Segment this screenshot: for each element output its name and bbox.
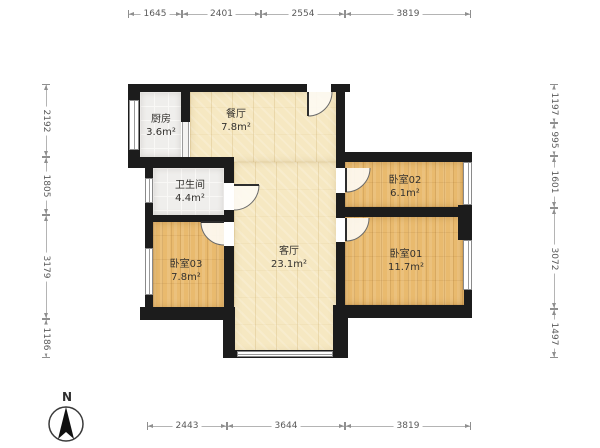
wall (140, 307, 235, 320)
dim-label: 1497 (549, 319, 559, 348)
dim-label: 3644 (272, 421, 301, 431)
dim-top-2554: 2554 (261, 8, 345, 20)
dim-label: 995 (549, 128, 559, 151)
wall (336, 152, 472, 162)
wall (336, 207, 472, 217)
dim-label: 1645 (141, 9, 170, 19)
dim-right-3072: 3072 (548, 208, 560, 309)
wall (224, 160, 234, 183)
wall (224, 246, 234, 307)
room-label-bedroom02: 卧室026.1m² (389, 174, 422, 200)
room-label-bedroom03: 卧室037.8m² (170, 258, 203, 284)
dim-right-1497: 1497 (548, 309, 560, 358)
room-label-bedroom01: 卧室0111.7m² (388, 248, 424, 274)
window (463, 240, 472, 290)
dim-label: 3819 (394, 9, 423, 19)
dim-label: 1805 (41, 172, 51, 201)
dim-top-3819: 3819 (345, 8, 471, 20)
dim-label: 2554 (289, 9, 318, 19)
window (129, 100, 139, 150)
dim-label: 3179 (41, 253, 51, 282)
dim-left-3179: 3179 (40, 215, 52, 319)
dim-bottom-3644: 3644 (227, 420, 345, 432)
dim-label: 2443 (173, 421, 202, 431)
dim-label: 3819 (394, 421, 423, 431)
wall (181, 84, 190, 122)
dim-left-2192: 2192 (40, 84, 52, 157)
window (145, 248, 153, 295)
floor-plan-canvas: 厨房3.6m²餐厅7.8m²客厅23.1m²卫生间4.4m²卧室037.8m²卧… (0, 0, 600, 448)
window (237, 351, 333, 357)
dim-label: 2192 (41, 106, 51, 135)
dim-top-1645: 1645 (128, 8, 182, 20)
dim-right-995: 995 (548, 123, 560, 156)
wall (147, 215, 234, 222)
wall (128, 84, 307, 92)
dim-label: 1197 (549, 89, 559, 118)
floor-plan-screenshot: 厨房3.6m²餐厅7.8m²客厅23.1m²卫生间4.4m²卧室037.8m²卧… (0, 0, 600, 448)
window (463, 162, 472, 205)
wall (336, 242, 345, 308)
dim-label: 3072 (549, 244, 559, 273)
dim-label: 1186 (41, 324, 51, 353)
dim-left-1805: 1805 (40, 157, 52, 215)
wall (128, 157, 234, 168)
dim-right-1197: 1197 (548, 84, 560, 123)
wall (345, 305, 472, 318)
dim-bottom-3819: 3819 (345, 420, 471, 432)
dim-bottom-2443: 2443 (147, 420, 227, 432)
dim-right-1601: 1601 (548, 156, 560, 208)
room-label-kitchen: 厨房3.6m² (146, 113, 176, 139)
dim-label: 1601 (549, 168, 559, 197)
room-label-bathroom: 卫生间4.4m² (175, 179, 205, 205)
room-label-living: 客厅23.1m² (271, 245, 307, 271)
room-label-dining: 餐厅7.8m² (221, 108, 251, 134)
window (145, 178, 153, 203)
room-dining (190, 92, 336, 162)
dim-top-2401: 2401 (182, 8, 261, 20)
dim-left-1186: 1186 (40, 319, 52, 358)
compass-north-label: N (62, 390, 72, 404)
dim-label: 2401 (207, 9, 236, 19)
kitchen-sliding-door (182, 122, 189, 157)
